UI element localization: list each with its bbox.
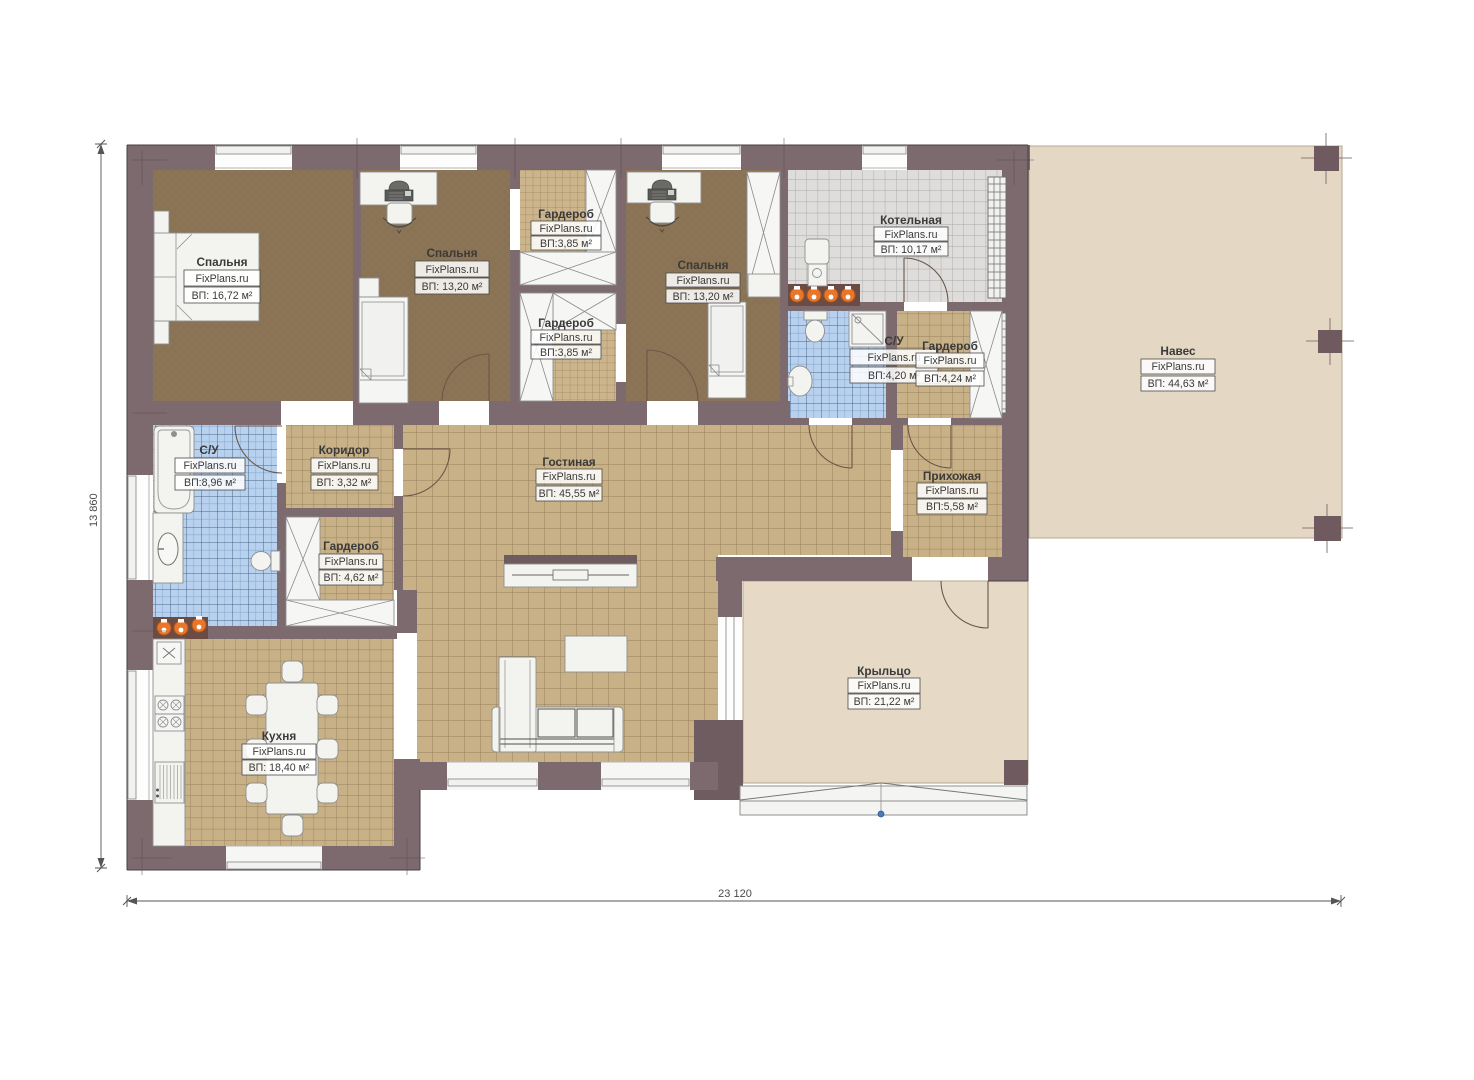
- svg-text:FixPlans.ru: FixPlans.ru: [858, 680, 911, 692]
- svg-text:FixPlans.ru: FixPlans.ru: [540, 223, 593, 235]
- svg-text:ВП: 16,72 м²: ВП: 16,72 м²: [192, 290, 253, 302]
- svg-text:FixPlans.ru: FixPlans.ru: [885, 229, 938, 241]
- svg-text:Спальня: Спальня: [197, 255, 248, 269]
- svg-text:FixPlans.ru: FixPlans.ru: [253, 746, 306, 758]
- svg-text:FixPlans.ru: FixPlans.ru: [926, 485, 979, 497]
- svg-text:ВП:3,85 м²: ВП:3,85 м²: [540, 347, 592, 359]
- svg-text:Котельная: Котельная: [880, 213, 942, 227]
- svg-text:FixPlans.ru: FixPlans.ru: [868, 352, 921, 364]
- svg-text:ВП:5,58 м²: ВП:5,58 м²: [926, 501, 978, 513]
- svg-text:ВП:8,96 м²: ВП:8,96 м²: [184, 477, 236, 489]
- svg-text:ВП: 4,62 м²: ВП: 4,62 м²: [324, 572, 379, 584]
- svg-text:Навес: Навес: [1160, 344, 1196, 358]
- svg-text:Гардероб: Гардероб: [922, 339, 978, 353]
- svg-text:23 120: 23 120: [718, 888, 752, 900]
- svg-text:Прихожая: Прихожая: [923, 469, 981, 483]
- svg-text:FixPlans.ru: FixPlans.ru: [426, 264, 479, 276]
- svg-text:Коридор: Коридор: [319, 443, 370, 457]
- svg-text:ВП: 45,55 м²: ВП: 45,55 м²: [539, 488, 600, 500]
- svg-text:ВП: 18,40 м²: ВП: 18,40 м²: [249, 762, 310, 774]
- svg-text:FixPlans.ru: FixPlans.ru: [325, 556, 378, 568]
- svg-text:С/У: С/У: [884, 334, 904, 348]
- svg-text:Спальня: Спальня: [678, 258, 729, 272]
- svg-text:FixPlans.ru: FixPlans.ru: [184, 460, 237, 472]
- svg-text:ВП: 21,22 м²: ВП: 21,22 м²: [854, 696, 915, 708]
- svg-text:ВП: 10,17 м²: ВП: 10,17 м²: [881, 244, 942, 256]
- svg-text:ВП: 13,20 м²: ВП: 13,20 м²: [422, 281, 483, 293]
- svg-text:13 860: 13 860: [88, 493, 100, 527]
- svg-text:ВП: 13,20 м²: ВП: 13,20 м²: [673, 291, 734, 303]
- svg-text:FixPlans.ru: FixPlans.ru: [543, 471, 596, 483]
- svg-text:Гардероб: Гардероб: [323, 539, 379, 553]
- svg-text:FixPlans.ru: FixPlans.ru: [677, 275, 730, 287]
- svg-text:Гостиная: Гостиная: [542, 455, 595, 469]
- svg-text:FixPlans.ru: FixPlans.ru: [1152, 361, 1205, 373]
- svg-text:Спальня: Спальня: [427, 246, 478, 260]
- svg-text:FixPlans.ru: FixPlans.ru: [540, 332, 593, 344]
- svg-text:Крыльцо: Крыльцо: [857, 664, 911, 678]
- svg-text:Гардероб: Гардероб: [538, 207, 594, 221]
- svg-text:Кухня: Кухня: [262, 729, 297, 743]
- svg-text:FixPlans.ru: FixPlans.ru: [924, 355, 977, 367]
- svg-text:ВП:3,85 м²: ВП:3,85 м²: [540, 238, 592, 250]
- svg-text:Гардероб: Гардероб: [538, 316, 594, 330]
- svg-text:FixPlans.ru: FixPlans.ru: [318, 460, 371, 472]
- svg-text:С/У: С/У: [199, 443, 219, 457]
- svg-text:FixPlans.ru: FixPlans.ru: [196, 273, 249, 285]
- svg-text:ВП: 44,63 м²: ВП: 44,63 м²: [1148, 378, 1209, 390]
- svg-text:ВП: 3,32 м²: ВП: 3,32 м²: [317, 477, 372, 489]
- svg-text:ВП:4,24 м²: ВП:4,24 м²: [924, 373, 976, 385]
- svg-text:ВП:4,20 м²: ВП:4,20 м²: [868, 370, 920, 382]
